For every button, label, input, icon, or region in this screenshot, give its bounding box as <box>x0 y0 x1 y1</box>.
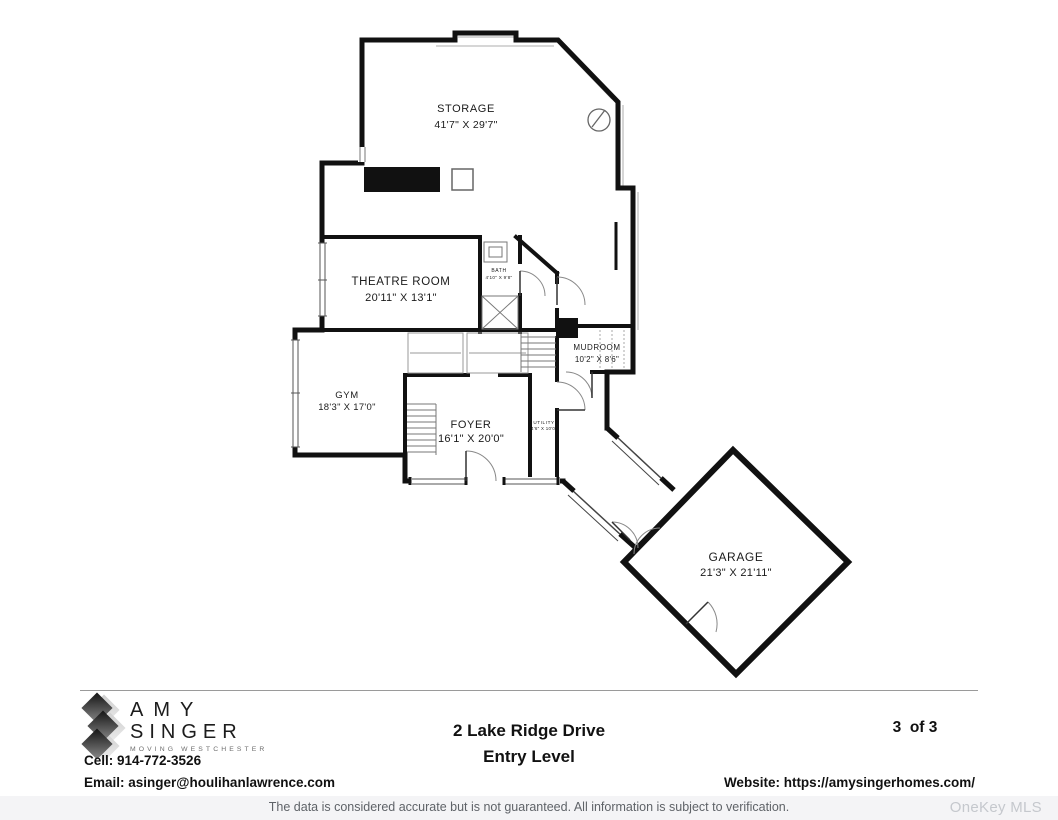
foyer-stairs <box>407 404 436 455</box>
floor-level: Entry Level <box>329 744 729 770</box>
exterior-accent-lines <box>436 37 638 330</box>
foyer-closets <box>408 333 528 373</box>
room-label-utility: UTILITY <box>533 420 554 425</box>
bottom-bar: The data is considered accurate but is n… <box>0 796 1058 820</box>
property-title: 2 Lake Ridge Drive Entry Level <box>329 718 729 770</box>
room-label-foyer: FOYER <box>451 419 492 431</box>
room-dims-storage: 41'7" X 29'7" <box>434 119 497 131</box>
exterior-walls <box>295 33 633 481</box>
mudroom-wall-block <box>556 318 578 338</box>
room-label-garage: GARAGE <box>709 550 764 564</box>
logo-name-line2: SINGER <box>130 721 267 743</box>
mls-watermark: OneKey MLS <box>950 799 1042 816</box>
page-number: 3 of 3 <box>855 719 975 737</box>
logo-name-line1: AMY <box>130 699 267 721</box>
agent-logo: AMY SINGER MOVING WESTCHESTER <box>84 697 267 759</box>
agent-email: Email: asinger@houlihanlawrence.com <box>84 775 335 790</box>
room-label-gym: GYM <box>335 390 358 401</box>
bath-fixtures <box>482 242 518 329</box>
floor-plan: STORAGE 41'7" X 29'7" THEATRE ROOM 20'11… <box>0 0 1058 692</box>
room-dims-foyer: 16'1" X 20'0" <box>438 433 504 445</box>
room-label-bath: BATH <box>491 268 506 274</box>
logo-diamonds-icon <box>84 697 124 759</box>
room-dims-mudroom: 10'2" X 8'6" <box>575 355 619 364</box>
storage-black-block <box>364 167 440 192</box>
storage-circle-fixture <box>588 109 610 131</box>
room-dims-garage: 21'3" X 21'11" <box>700 567 772 579</box>
agent-website: Website: https://amysingerhomes.com/ <box>724 775 975 790</box>
storage-square-fixture <box>452 169 473 190</box>
room-label-storage: STORAGE <box>437 103 495 115</box>
agent-cell: Cell: 914-772-3526 <box>84 753 201 768</box>
room-dims-gym: 18'3" X 17'0" <box>318 402 376 413</box>
disclaimer-text: The data is considered accurate but is n… <box>0 800 1058 814</box>
room-label-theatre: THEATRE ROOM <box>352 276 451 288</box>
room-dims-bath: 4'10" X 9'8" <box>485 275 512 280</box>
utility-stairs <box>521 334 556 372</box>
room-dims-utility: 4'6" X 10'0" <box>531 426 557 431</box>
footer: AMY SINGER MOVING WESTCHESTER Cell: 914-… <box>0 691 1058 796</box>
room-dims-theatre: 20'11" X 13'1" <box>365 292 437 304</box>
property-address: 2 Lake Ridge Drive <box>329 718 729 744</box>
logo-tagline: MOVING WESTCHESTER <box>130 746 267 753</box>
room-label-mudroom: MUDROOM <box>573 343 620 352</box>
logo-text: AMY SINGER MOVING WESTCHESTER <box>130 699 267 753</box>
floor-plan-svg: STORAGE 41'7" X 29'7" THEATRE ROOM 20'11… <box>0 0 1058 692</box>
